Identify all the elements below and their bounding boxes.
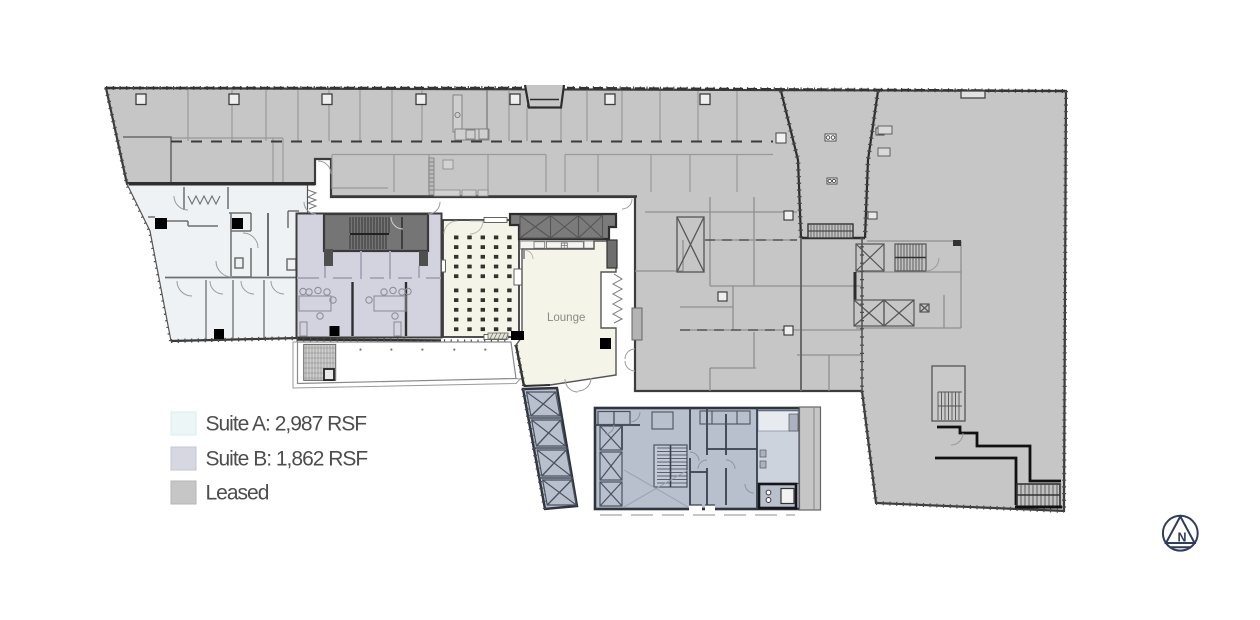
svg-text:Lounge: Lounge [547, 312, 585, 324]
svg-text:N: N [1178, 531, 1187, 545]
svg-text:Leased: Leased [206, 482, 269, 505]
svg-text:Suite B: 1,862 RSF: Suite B: 1,862 RSF [206, 448, 368, 471]
svg-text:Suite A: 2,987 RSF: Suite A: 2,987 RSF [206, 413, 367, 436]
